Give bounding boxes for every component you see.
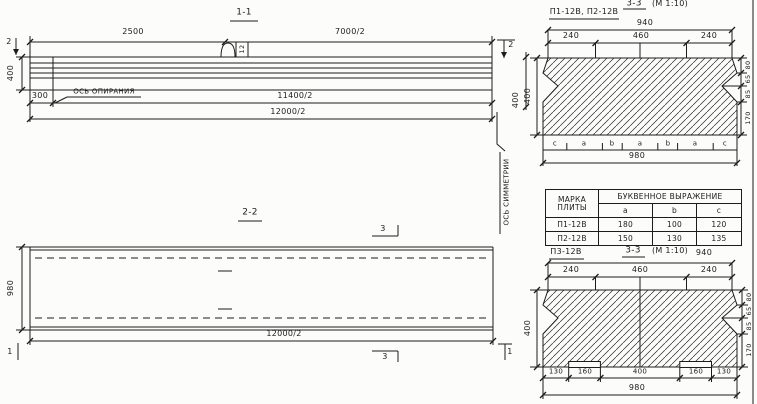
dim-400-bottom-row: 400 <box>633 369 647 376</box>
table-col-b: b <box>653 204 697 218</box>
table-header-mark-line2: ПЛИТЫ <box>557 203 587 212</box>
dim-240-r-top: 240 <box>701 32 717 40</box>
dim-400-section-bottom: 400 <box>524 320 532 336</box>
cut-mark-3-bottom: 3 <box>382 353 387 361</box>
dim-400-right: 400 <box>512 92 520 108</box>
dim-170-bottom: 170 <box>746 343 753 356</box>
dim-460-bottom: 460 <box>632 266 648 274</box>
letter-dim-c1: c <box>553 141 557 148</box>
dim-65-bottom: 65 <box>746 307 753 316</box>
cut-mark-1-right: 1 <box>507 348 512 356</box>
dim-940-top: 940 <box>637 19 653 27</box>
dim-240-l-top: 240 <box>563 32 579 40</box>
dim-980-left: 980 <box>7 280 15 296</box>
plate-parameters-table: МАРКА ПЛИТЫ БУКВЕННОЕ ВЫРАЖЕНИЕ a b c П1… <box>545 189 742 246</box>
dim-160-r: 160 <box>689 369 703 376</box>
letter-dim-a3: a <box>693 141 698 148</box>
dim-300: 300 <box>32 92 48 100</box>
table-cell-mark: П2-12В <box>546 232 599 246</box>
table-cell-c: 135 <box>697 232 742 246</box>
cut-mark-2-left: 2 <box>6 38 11 46</box>
dim-130-r: 130 <box>717 369 731 376</box>
dim-170-top: 170 <box>745 111 752 124</box>
dim-130-l: 130 <box>549 369 563 376</box>
table-header-span: БУКВЕННОЕ ВЫРАЖЕНИЕ <box>599 190 742 204</box>
dim-2500: 2500 <box>122 28 144 36</box>
cut-mark-3-top: 3 <box>380 225 385 233</box>
cut-mark-1-left: 1 <box>7 348 12 356</box>
dim-80-bottom: 80 <box>746 293 753 302</box>
section-2-2-title: 2-2 <box>242 209 258 218</box>
plate-marks-label: П1-12В, П2-12В <box>550 8 619 16</box>
letter-dim-a1: a <box>582 141 587 148</box>
cut-mark-2-right: 2 <box>508 41 513 49</box>
table-cell-mark: П1-12В <box>546 218 599 232</box>
dim-85-top: 85 <box>745 90 752 99</box>
dim-12000-2: 12000/2 <box>270 108 305 116</box>
symmetry-axis-label: ОСЬ СИММЕТРИИ <box>504 159 511 226</box>
section-3-3-bottom-scale: (М 1:10) <box>652 247 688 255</box>
dim-460-top: 460 <box>633 32 649 40</box>
table-cell-c: 120 <box>697 218 742 232</box>
letter-dim-b1: b <box>610 141 615 148</box>
table-header-mark: МАРКА ПЛИТЫ <box>546 190 599 218</box>
dim-85-bottom: 85 <box>746 322 753 331</box>
letter-dim-a2: a <box>638 141 643 148</box>
table-cell-b: 130 <box>653 232 697 246</box>
table-row: П2-12В 150 130 135 <box>546 232 742 246</box>
dim-240-r-bottom: 240 <box>701 266 717 274</box>
table-cell-a: 180 <box>599 218 653 232</box>
section-3-3-top-scale: (М 1:10) <box>652 0 688 8</box>
dim-400-left: 400 <box>7 65 15 81</box>
dim-80-top: 80 <box>745 61 752 70</box>
dim-65-top: 65 <box>745 75 752 84</box>
dim-12000-2-plan: 12000/2 <box>266 330 301 338</box>
letter-dim-c2: c <box>723 141 727 148</box>
engineering-drawing-sheet: 1-1 2500 7000/2 2 2 400 400 300 ОСЬ ОПИР… <box>0 0 757 404</box>
section-1-1-title: 1-1 <box>236 9 252 18</box>
section-3-3-bottom-title: 3-3 <box>625 247 641 256</box>
lifting-loop-mark: 12 <box>239 45 246 54</box>
dim-11400-2: 11400/2 <box>277 92 312 100</box>
dim-980-bottom-section: 980 <box>629 384 645 392</box>
dim-7000-2: 7000/2 <box>335 28 365 36</box>
table-cell-b: 100 <box>653 218 697 232</box>
dim-980-top-section: 980 <box>629 152 645 160</box>
table-col-c: c <box>697 204 742 218</box>
dim-400-section-top: 400 <box>524 88 532 104</box>
dim-240-l-bottom: 240 <box>563 266 579 274</box>
letter-dim-b2: b <box>666 141 671 148</box>
dim-160-l: 160 <box>578 369 592 376</box>
table-row: П1-12В 180 100 120 <box>546 218 742 232</box>
plate-mark-p3-label: П3-12В <box>550 248 581 256</box>
table-col-a: a <box>599 204 653 218</box>
section-3-3-top-title: 3-3 <box>626 0 642 9</box>
support-axis-label: ОСЬ ОПИРАНИЯ <box>73 89 134 96</box>
dim-940-bottom: 940 <box>696 249 712 257</box>
table-cell-a: 150 <box>599 232 653 246</box>
